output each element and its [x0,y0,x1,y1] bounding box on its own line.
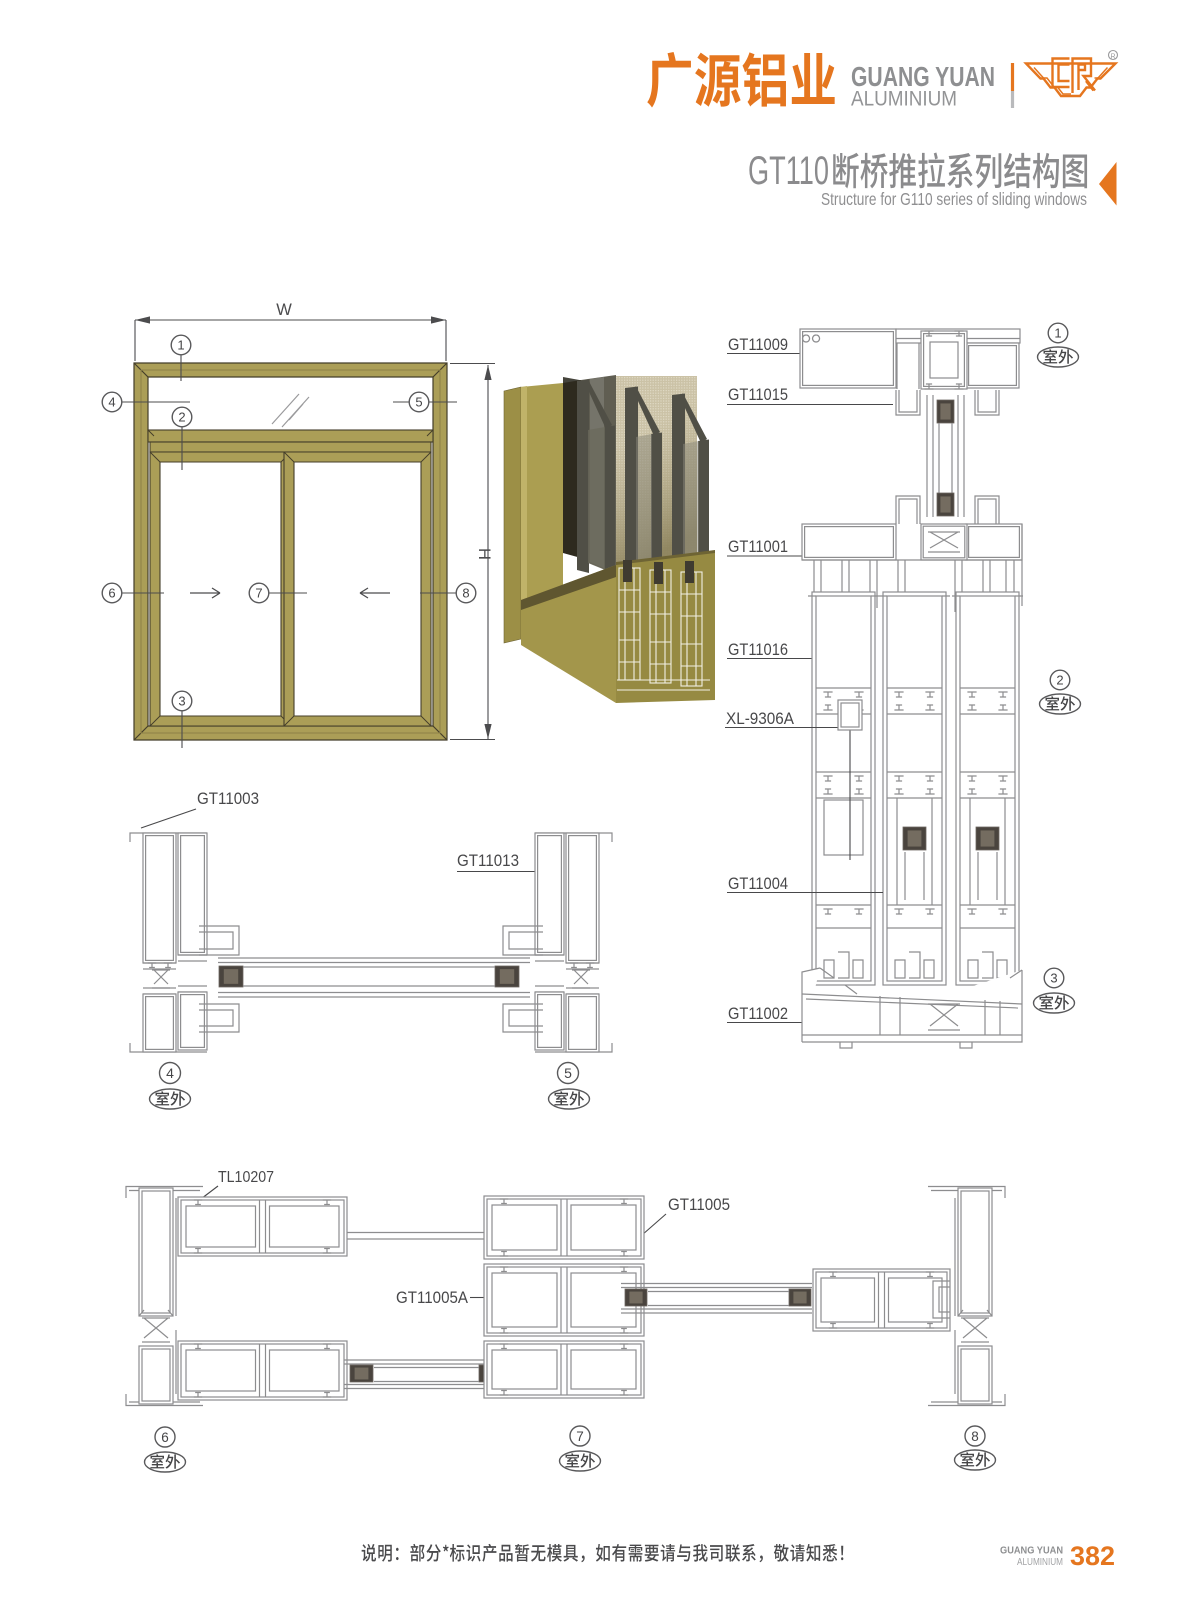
svg-text:R: R [1110,54,1115,61]
svg-text:5: 5 [415,395,422,410]
svg-text:GT11002: GT11002 [728,1004,788,1023]
svg-text:H: H [475,548,493,560]
svg-text:GT11009: GT11009 [728,335,788,354]
svg-text:GT11003: GT11003 [197,789,259,808]
svg-text:7: 7 [576,1429,584,1444]
svg-text:3: 3 [178,694,185,709]
svg-text:7: 7 [255,586,262,601]
svg-text:382: 382 [1070,1541,1115,1571]
svg-text:XL-9306A: XL-9306A [726,709,795,728]
svg-text:4: 4 [108,395,115,410]
svg-text:GT11016: GT11016 [728,640,788,659]
svg-text:1: 1 [1054,326,1061,341]
svg-text:2: 2 [1056,673,1063,688]
svg-text:GT11015: GT11015 [728,385,788,404]
svg-text:ALUMINIUM: ALUMINIUM [851,88,957,111]
svg-text:GT11001: GT11001 [728,537,788,556]
svg-text:ALUMINIUM: ALUMINIUM [1017,1557,1063,1568]
svg-text:GT11005A: GT11005A [396,1288,469,1307]
svg-text:5: 5 [564,1065,572,1081]
svg-text:TL10207: TL10207 [218,1169,274,1186]
svg-text:GT11013: GT11013 [457,851,519,870]
svg-text:Structure for G110 series of s: Structure for G110 series of sliding win… [821,189,1087,209]
svg-text:6: 6 [161,1430,169,1445]
svg-text:W: W [276,301,292,319]
svg-text:GT11005: GT11005 [668,1195,730,1214]
svg-text:3: 3 [1050,971,1057,986]
svg-text:GT11004: GT11004 [728,874,788,893]
svg-text:1: 1 [177,338,184,353]
svg-text:4: 4 [166,1065,174,1081]
svg-text:8: 8 [462,586,469,601]
svg-text:GUANG YUAN: GUANG YUAN [1000,1546,1063,1557]
svg-text:8: 8 [971,1429,979,1444]
svg-text:GT110: GT110 [748,149,829,193]
svg-text:6: 6 [108,586,115,601]
svg-text:2: 2 [178,410,185,425]
